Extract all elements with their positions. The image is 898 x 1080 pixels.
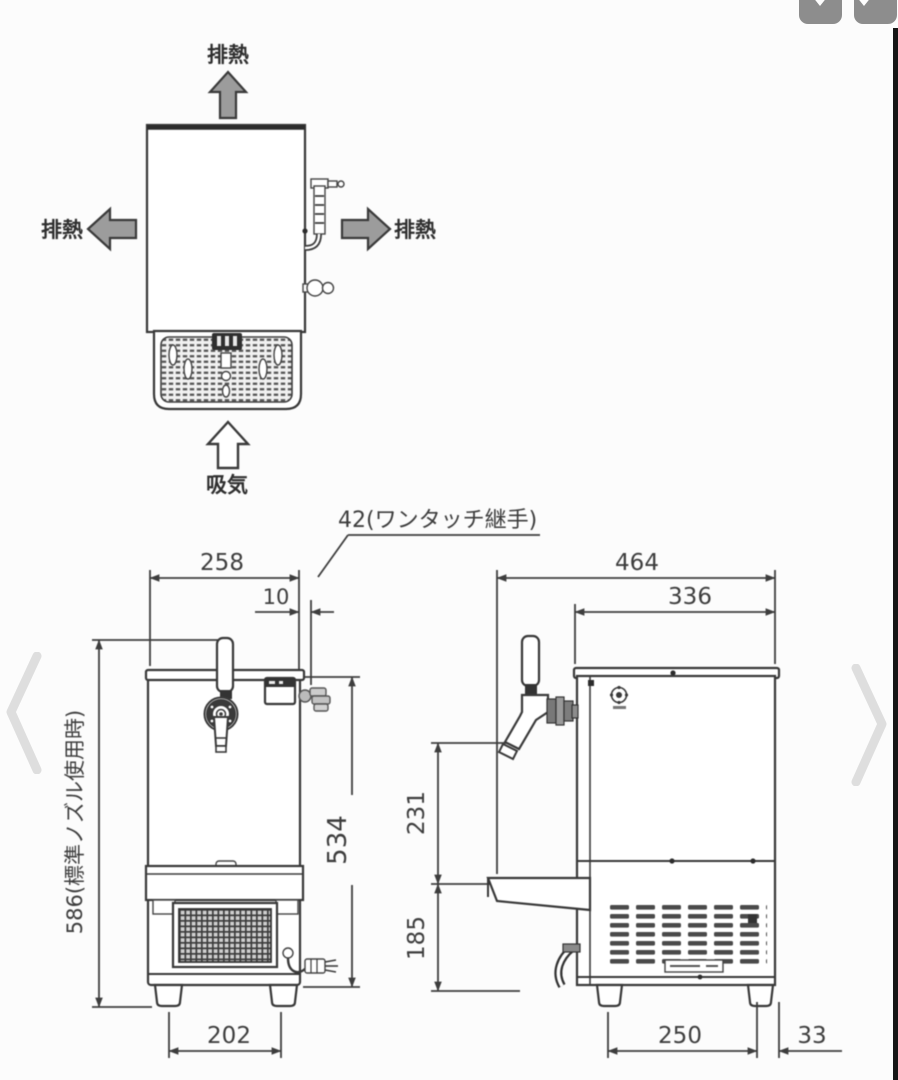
toolbar-button-2-glyph <box>856 0 872 6</box>
fitting-callout: 42(ワンタッチ継手) <box>318 508 540 577</box>
toolbar-button-1-glyph <box>812 0 828 6</box>
photo-viewer-stage: 排熱 排熱 排熱 <box>0 0 898 1080</box>
fitting-callout-label: 42(ワンタッチ継手) <box>338 508 537 533</box>
exhaust-right-label: 排熱 <box>394 218 436 242</box>
front-right-foot <box>270 985 297 1006</box>
side-foot-span-dim: 250 <box>658 1023 702 1049</box>
side-louver-vents <box>610 905 767 966</box>
front-total-height-dim: 586(標準ノズル使用時) <box>63 710 87 934</box>
chevron-right-icon <box>850 664 890 786</box>
top-view-cabinet <box>147 125 305 332</box>
front-width-dim: 258 <box>200 550 244 576</box>
side-tap <box>499 636 578 759</box>
intake-arrow-icon <box>208 422 248 468</box>
side-drip-tray <box>488 878 590 910</box>
toolbar-button-1[interactable] <box>799 0 842 24</box>
control-panel <box>265 678 295 704</box>
exhaust-right-arrow-icon <box>342 209 390 249</box>
exhaust-left-arrow-icon <box>88 209 136 249</box>
side-left-foot <box>597 985 622 1006</box>
chevron-left-icon <box>4 652 44 774</box>
front-left-foot <box>155 985 182 1006</box>
side-right-foot <box>748 985 773 1006</box>
front-body-height-dim: 534 <box>323 815 353 865</box>
exhaust-top-arrow-icon <box>210 72 246 118</box>
top-view-grille <box>154 331 301 409</box>
intake-label: 吸気 <box>206 473 248 497</box>
top-view-fitting <box>302 179 344 248</box>
front-view: 258 10 586(標準ノズル使用時) 534 <box>63 550 360 1058</box>
right-edge-bar <box>893 28 898 1080</box>
side-view: 464 336 231 185 <box>404 550 842 1058</box>
side-depth-dim: 464 <box>615 550 659 576</box>
top-view-port <box>303 280 334 296</box>
tap-handle <box>217 638 233 692</box>
toolbar-button-2[interactable] <box>854 0 897 24</box>
exhaust-left-label: 排熱 <box>41 218 83 242</box>
top-view: 排熱 排熱 排熱 <box>41 43 436 497</box>
previous-image-button[interactable] <box>4 652 44 774</box>
next-image-button[interactable] <box>850 664 890 786</box>
exhaust-top-label: 排熱 <box>207 43 249 67</box>
side-tap-drop-dim: 231 <box>404 791 430 835</box>
front-foot-span-dim: 202 <box>207 1023 251 1049</box>
technical-drawing-svg: 排熱 排熱 排熱 <box>0 0 898 1080</box>
front-offset-dim: 10 <box>263 585 290 609</box>
side-body-depth-dim: 336 <box>668 584 712 610</box>
front-fitting <box>299 688 330 711</box>
side-rear-offset-dim: 33 <box>797 1023 826 1049</box>
side-lower-height-dim: 185 <box>404 916 430 960</box>
